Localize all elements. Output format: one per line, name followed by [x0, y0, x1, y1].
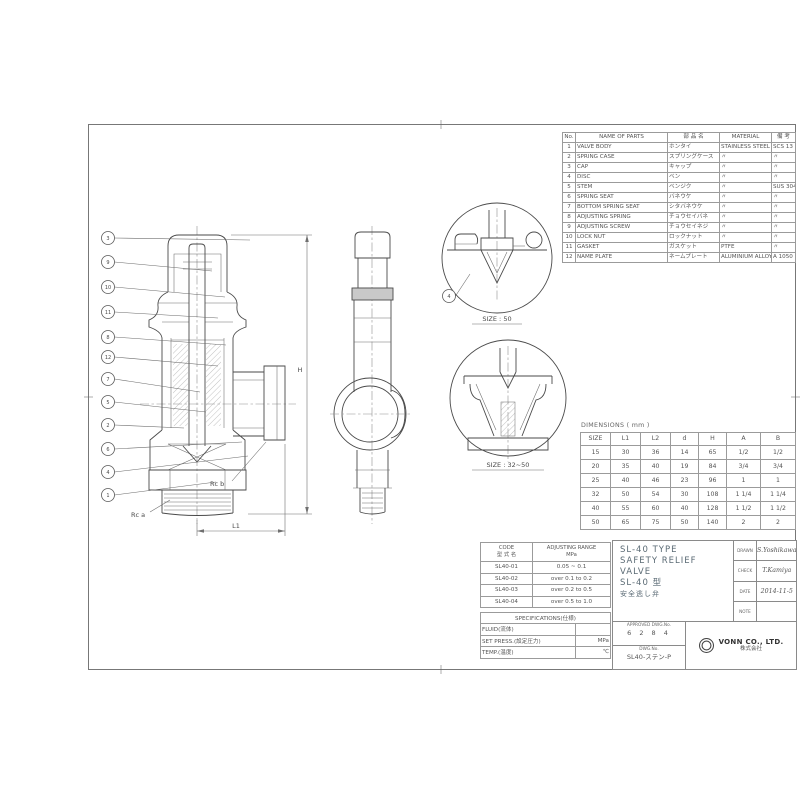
table-cell: 11	[563, 243, 576, 253]
drawing-sheet: Rc a Rc b L1 H	[0, 0, 800, 800]
code-table-header: CODE 型 式 名 ADJUSTING RANGE MPa	[481, 543, 611, 562]
range-header-en: ADJUSTING RANGE	[534, 545, 609, 552]
table-cell: over 0.1 to 0.2	[533, 573, 611, 585]
company-name: VONN CO., LTD.	[719, 638, 784, 646]
table-cell: 96	[699, 474, 727, 488]
detail2-caption: SIZE : 32~50	[487, 461, 530, 469]
table-row: 1VALVE BODYホンタイSTAINLESS STEELSCS 13	[563, 143, 796, 153]
balloon-number: 4	[106, 470, 109, 476]
table-row: 15303614651/21/2	[581, 446, 796, 460]
table-row: SL40-02over 0.1 to 0.2	[481, 573, 611, 585]
date-value: 2014-11-5	[757, 582, 797, 601]
drawn-label: DRAWN	[734, 541, 757, 560]
table-cell: 12	[563, 253, 576, 263]
table-cell: チョウセイバネ	[668, 213, 720, 223]
table-cell: 35	[611, 460, 641, 474]
table-row: 11GASKETガスケットPTFE〃	[563, 243, 796, 253]
table-cell: 2	[727, 516, 761, 530]
table-cell: A 1050 P	[772, 253, 796, 263]
table-cell: 60	[641, 502, 671, 516]
table-row: 325054301081 1/41 1/4	[581, 488, 796, 502]
table-cell: SL40-03	[481, 585, 533, 597]
company-logo-icon	[699, 638, 714, 653]
table-row: 9ADJUSTING SCREWチョウセイネジ〃〃	[563, 223, 796, 233]
table-cell: VALVE BODY	[576, 143, 668, 153]
dwg-no-value: SL40-ステン-P	[613, 653, 685, 662]
table-cell: MPa	[576, 635, 611, 647]
table-cell: 40	[641, 460, 671, 474]
adjusting-range-table: CODE 型 式 名 ADJUSTING RANGE MPa SL40-010.…	[480, 542, 611, 608]
table-cell: ネームプレート	[668, 253, 720, 263]
table-cell: 〃	[772, 193, 796, 203]
drawn-row: DRAWN S.Yoshikawa	[734, 541, 797, 561]
table-cell: 36	[641, 446, 671, 460]
balloon-number: 5	[106, 400, 109, 406]
signature-grid: DRAWN S.Yoshikawa CHECK T.Kamiya DATE 20…	[734, 541, 797, 621]
balloon-number: 7	[106, 377, 109, 383]
table-cell: 〃	[720, 173, 772, 183]
table-cell: 〃	[720, 193, 772, 203]
table-cell: 〃	[772, 213, 796, 223]
drawing-title: SL-40 TYPE SAFETY RELIEF VALVE SL-40 型 安…	[613, 541, 734, 621]
rc-b-label: Rc b	[210, 480, 224, 488]
table-cell	[576, 624, 611, 636]
table-cell: SCS 13	[772, 143, 796, 153]
table-cell: DISC	[576, 173, 668, 183]
table-cell: SL40-04	[481, 596, 533, 608]
table-row: SL40-010.05 ~ 0.1	[481, 562, 611, 574]
table-cell: 19	[671, 460, 699, 474]
table-cell: 2	[563, 153, 576, 163]
table-row: 3CAPキャップ〃〃	[563, 163, 796, 173]
table-row: 2SPRING CASEスプリングケース〃〃	[563, 153, 796, 163]
table-cell: 1/2	[761, 446, 796, 460]
balloon-number: 2	[106, 423, 109, 429]
note-label: NOTE	[734, 602, 757, 621]
table-row: 5STEMベンジク〃SUS 304	[563, 183, 796, 193]
company-cell: VONN CO., LTD. 株式会社	[686, 622, 796, 669]
table-cell: ALUMINIUM ALLOY	[720, 253, 772, 263]
code-header-jp: 型 式 名	[482, 552, 531, 559]
table-row: 5065755014022	[581, 516, 796, 530]
table-cell: 3/4	[727, 460, 761, 474]
drawn-signature: S.Yoshikawa	[757, 541, 797, 560]
table-cell: 〃	[720, 203, 772, 213]
table-cell: 〃	[772, 173, 796, 183]
dimensions-title: DIMENSIONS ( mm )	[581, 422, 650, 429]
table-row: 6SPRING SEATバネウケ〃〃	[563, 193, 796, 203]
spec-table-header: SPECIFICATIONS(仕様)	[481, 613, 611, 624]
table-cell: 23	[671, 474, 699, 488]
date-row: DATE 2014-11-5	[734, 582, 797, 602]
table-cell: 65	[699, 446, 727, 460]
table-row: 405560401281 1/21 1/2	[581, 502, 796, 516]
table-cell: 3	[563, 163, 576, 173]
table-cell: 10	[563, 233, 576, 243]
table-cell: 〃	[772, 153, 796, 163]
title-line-jp: 安全逃し弁	[620, 589, 733, 599]
table-cell: TEMP.(温度)	[481, 647, 576, 659]
balloon-number: 10	[105, 285, 111, 291]
table-cell: ベンジク	[668, 183, 720, 193]
table-row: 8ADJUSTING SPRINGチョウセイバネ〃〃	[563, 213, 796, 223]
table-cell: 30	[611, 446, 641, 460]
table-cell: 1 1/2	[727, 502, 761, 516]
table-cell: 50	[581, 516, 611, 530]
table-cell: STAINLESS STEEL	[720, 143, 772, 153]
table-cell: ロックナット	[668, 233, 720, 243]
table-cell: 108	[699, 488, 727, 502]
note-value	[757, 602, 797, 621]
check-row: CHECK T.Kamiya	[734, 561, 797, 581]
table-cell: over 0.2 to 0.5	[533, 585, 611, 597]
table-row: SET PRESS.(設定圧力)MPa	[481, 635, 611, 647]
table-cell: 2	[761, 516, 796, 530]
title-line: VALVE	[620, 567, 733, 578]
table-cell: 40	[671, 502, 699, 516]
balloon-number: 9	[106, 260, 109, 266]
table-cell: ベン	[668, 173, 720, 183]
table-row: SL40-04over 0.5 to 1.0	[481, 596, 611, 608]
table-row: 7BOTTOM SPRING SEATシタバネウケ〃〃	[563, 203, 796, 213]
table-cell: 140	[699, 516, 727, 530]
table-cell: SPRING CASE	[576, 153, 668, 163]
balloon-number: 1	[106, 493, 109, 499]
table-cell: PTFE	[720, 243, 772, 253]
balloon-number: 3	[106, 236, 109, 242]
table-cell: 1 1/4	[727, 488, 761, 502]
title-line: SL-40 TYPE	[620, 545, 733, 556]
title-line: SAFETY RELIEF	[620, 556, 733, 567]
table-cell: 6	[563, 193, 576, 203]
table-cell: 8	[563, 213, 576, 223]
table-cell: 5	[563, 183, 576, 193]
table-cell: 30	[671, 488, 699, 502]
table-cell: 9	[563, 223, 576, 233]
table-cell: 〃	[772, 243, 796, 253]
table-cell: 1	[563, 143, 576, 153]
table-row: 254046239611	[581, 474, 796, 488]
table-cell: スプリングケース	[668, 153, 720, 163]
table-cell: 25	[581, 474, 611, 488]
table-cell: GASKET	[576, 243, 668, 253]
table-cell: 3/4	[761, 460, 796, 474]
table-cell: 〃	[772, 163, 796, 173]
check-signature: T.Kamiya	[757, 561, 797, 580]
table-cell: 84	[699, 460, 727, 474]
code-header-en: CODE	[482, 545, 531, 552]
table-cell: 0.05 ~ 0.1	[533, 562, 611, 574]
table-cell: 75	[641, 516, 671, 530]
table-cell: 〃	[772, 233, 796, 243]
note-row: NOTE	[734, 602, 797, 621]
table-cell: バネウケ	[668, 193, 720, 203]
table-cell: ADJUSTING SPRING	[576, 213, 668, 223]
table-cell: 20	[581, 460, 611, 474]
table-cell: over 0.5 to 1.0	[533, 596, 611, 608]
table-cell: 1/2	[727, 446, 761, 460]
table-cell: 14	[671, 446, 699, 460]
table-row: 12NAME PLATEネームプレートALUMINIUM ALLOYA 1050…	[563, 253, 796, 263]
table-cell: SET PRESS.(設定圧力)	[481, 635, 576, 647]
table-cell: ADJUSTING SCREW	[576, 223, 668, 233]
table-cell: 1	[727, 474, 761, 488]
rc-a-label: Rc a	[131, 511, 145, 519]
range-header-unit: MPa	[534, 552, 609, 559]
table-cell: CAP	[576, 163, 668, 173]
parts-table-header: No. NAME OF PARTS 部 品 名 MATERIAL 備 考	[563, 133, 796, 143]
table-cell: 128	[699, 502, 727, 516]
table-cell: NAME PLATE	[576, 253, 668, 263]
table-cell: 〃	[772, 203, 796, 213]
table-cell: 1 1/4	[761, 488, 796, 502]
table-cell: 〃	[720, 223, 772, 233]
table-cell: LOCK NUT	[576, 233, 668, 243]
table-row: 4DISCベン〃〃	[563, 173, 796, 183]
table-cell: BOTTOM SPRING SEAT	[576, 203, 668, 213]
balloon-number: 6	[106, 447, 109, 453]
table-row: 20354019843/43/4	[581, 460, 796, 474]
balloon-number: 4	[447, 294, 450, 300]
table-row: 10LOCK NUTロックナット〃〃	[563, 233, 796, 243]
table-row: FLUID(流体)	[481, 624, 611, 636]
l1-dim-label: L1	[232, 522, 240, 530]
check-label: CHECK	[734, 561, 757, 580]
title-line-jp: SL-40 型	[620, 578, 733, 589]
table-cell: ガスケット	[668, 243, 720, 253]
table-cell: 40	[611, 474, 641, 488]
table-cell: シタバネウケ	[668, 203, 720, 213]
detail1-caption: SIZE : 50	[482, 315, 511, 323]
specification-table: SPECIFICATIONS(仕様) FLUID(流体)SET PRESS.(設…	[480, 612, 611, 659]
table-cell: 32	[581, 488, 611, 502]
table-row: SL40-03over 0.2 to 0.5	[481, 585, 611, 597]
title-block: SL-40 TYPE SAFETY RELIEF VALVE SL-40 型 安…	[612, 540, 797, 670]
table-cell: キャップ	[668, 163, 720, 173]
table-cell: 50	[671, 516, 699, 530]
table-cell: 65	[611, 516, 641, 530]
table-cell: 1 1/2	[761, 502, 796, 516]
table-cell: SL40-02	[481, 573, 533, 585]
table-cell: ℃	[576, 647, 611, 659]
balloon-number: 11	[105, 310, 111, 316]
table-cell: SUS 304	[772, 183, 796, 193]
dwg-no: DWG.No. SL40-ステン-P	[613, 646, 685, 669]
table-cell: 40	[581, 502, 611, 516]
table-cell: チョウセイネジ	[668, 223, 720, 233]
table-cell: 〃	[720, 183, 772, 193]
dimensions-table-header: SIZE L1 L2 d H A B	[581, 433, 796, 446]
table-cell: 4	[563, 173, 576, 183]
table-cell: 55	[611, 502, 641, 516]
table-cell: 〃	[772, 223, 796, 233]
h-dim-label: H	[298, 366, 303, 374]
table-cell: 7	[563, 203, 576, 213]
parts-table: No. NAME OF PARTS 部 品 名 MATERIAL 備 考 1VA…	[562, 132, 796, 263]
table-cell: 46	[641, 474, 671, 488]
table-cell: STEM	[576, 183, 668, 193]
table-cell: SPRING SEAT	[576, 193, 668, 203]
table-cell: SL40-01	[481, 562, 533, 574]
table-cell: 〃	[720, 163, 772, 173]
date-label: DATE	[734, 582, 757, 601]
table-cell: 50	[611, 488, 641, 502]
approved-dwg-no: APPROVED DWG.No. 6 2 8 4	[613, 622, 685, 646]
valve-drawing: Rc a Rc b L1 H	[0, 0, 800, 800]
balloon-number: 12	[105, 355, 111, 361]
company-name-jp: 株式会社	[719, 646, 784, 653]
table-cell: 54	[641, 488, 671, 502]
dimensions-table: SIZE L1 L2 d H A B 15303614651/21/220354…	[580, 432, 796, 530]
table-row: TEMP.(温度)℃	[481, 647, 611, 659]
table-cell: 〃	[720, 233, 772, 243]
table-cell: ホンタイ	[668, 143, 720, 153]
table-cell: 〃	[720, 213, 772, 223]
table-cell: 15	[581, 446, 611, 460]
approved-dwg-value: 6 2 8 4	[613, 629, 685, 638]
table-cell: 1	[761, 474, 796, 488]
table-cell: FLUID(流体)	[481, 624, 576, 636]
table-cell: 〃	[720, 153, 772, 163]
balloon-number: 8	[106, 335, 109, 341]
